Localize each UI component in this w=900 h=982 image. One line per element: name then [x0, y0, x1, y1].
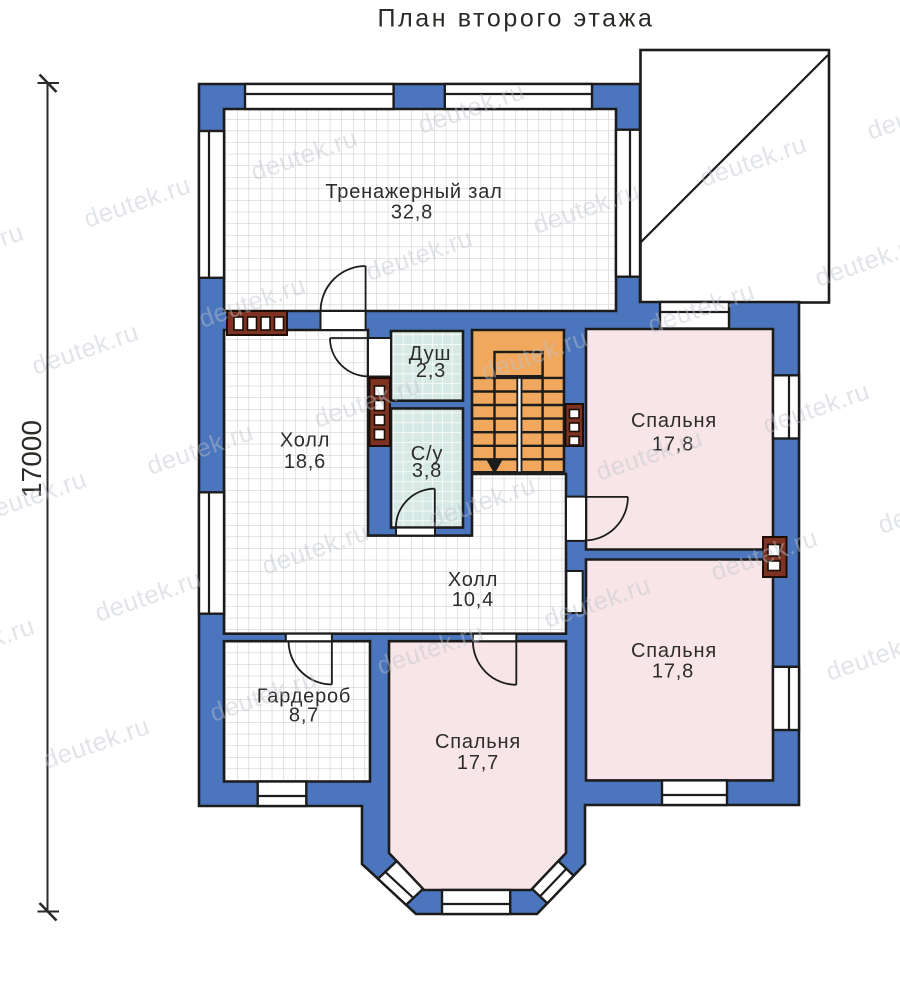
svg-text:Холл: Холл — [280, 430, 330, 452]
svg-text:Холл: Холл — [448, 569, 498, 591]
svg-text:Спальня: Спальня — [631, 640, 717, 662]
svg-text:2,3: 2,3 — [416, 360, 446, 382]
svg-text:Тренажерный зал: Тренажерный зал — [325, 181, 502, 203]
svg-text:8,7: 8,7 — [289, 705, 319, 727]
svg-text:17,8: 17,8 — [652, 661, 694, 683]
svg-text:32,8: 32,8 — [391, 202, 433, 224]
svg-text:Спальня: Спальня — [631, 410, 717, 432]
svg-text:Спальня: Спальня — [435, 731, 521, 753]
svg-text:10,4: 10,4 — [452, 589, 494, 611]
svg-text:18,6: 18,6 — [284, 451, 326, 473]
svg-text:17,7: 17,7 — [457, 752, 499, 774]
svg-text:План второго этажа: План второго этажа — [378, 5, 655, 33]
svg-text:3,8: 3,8 — [412, 460, 442, 482]
